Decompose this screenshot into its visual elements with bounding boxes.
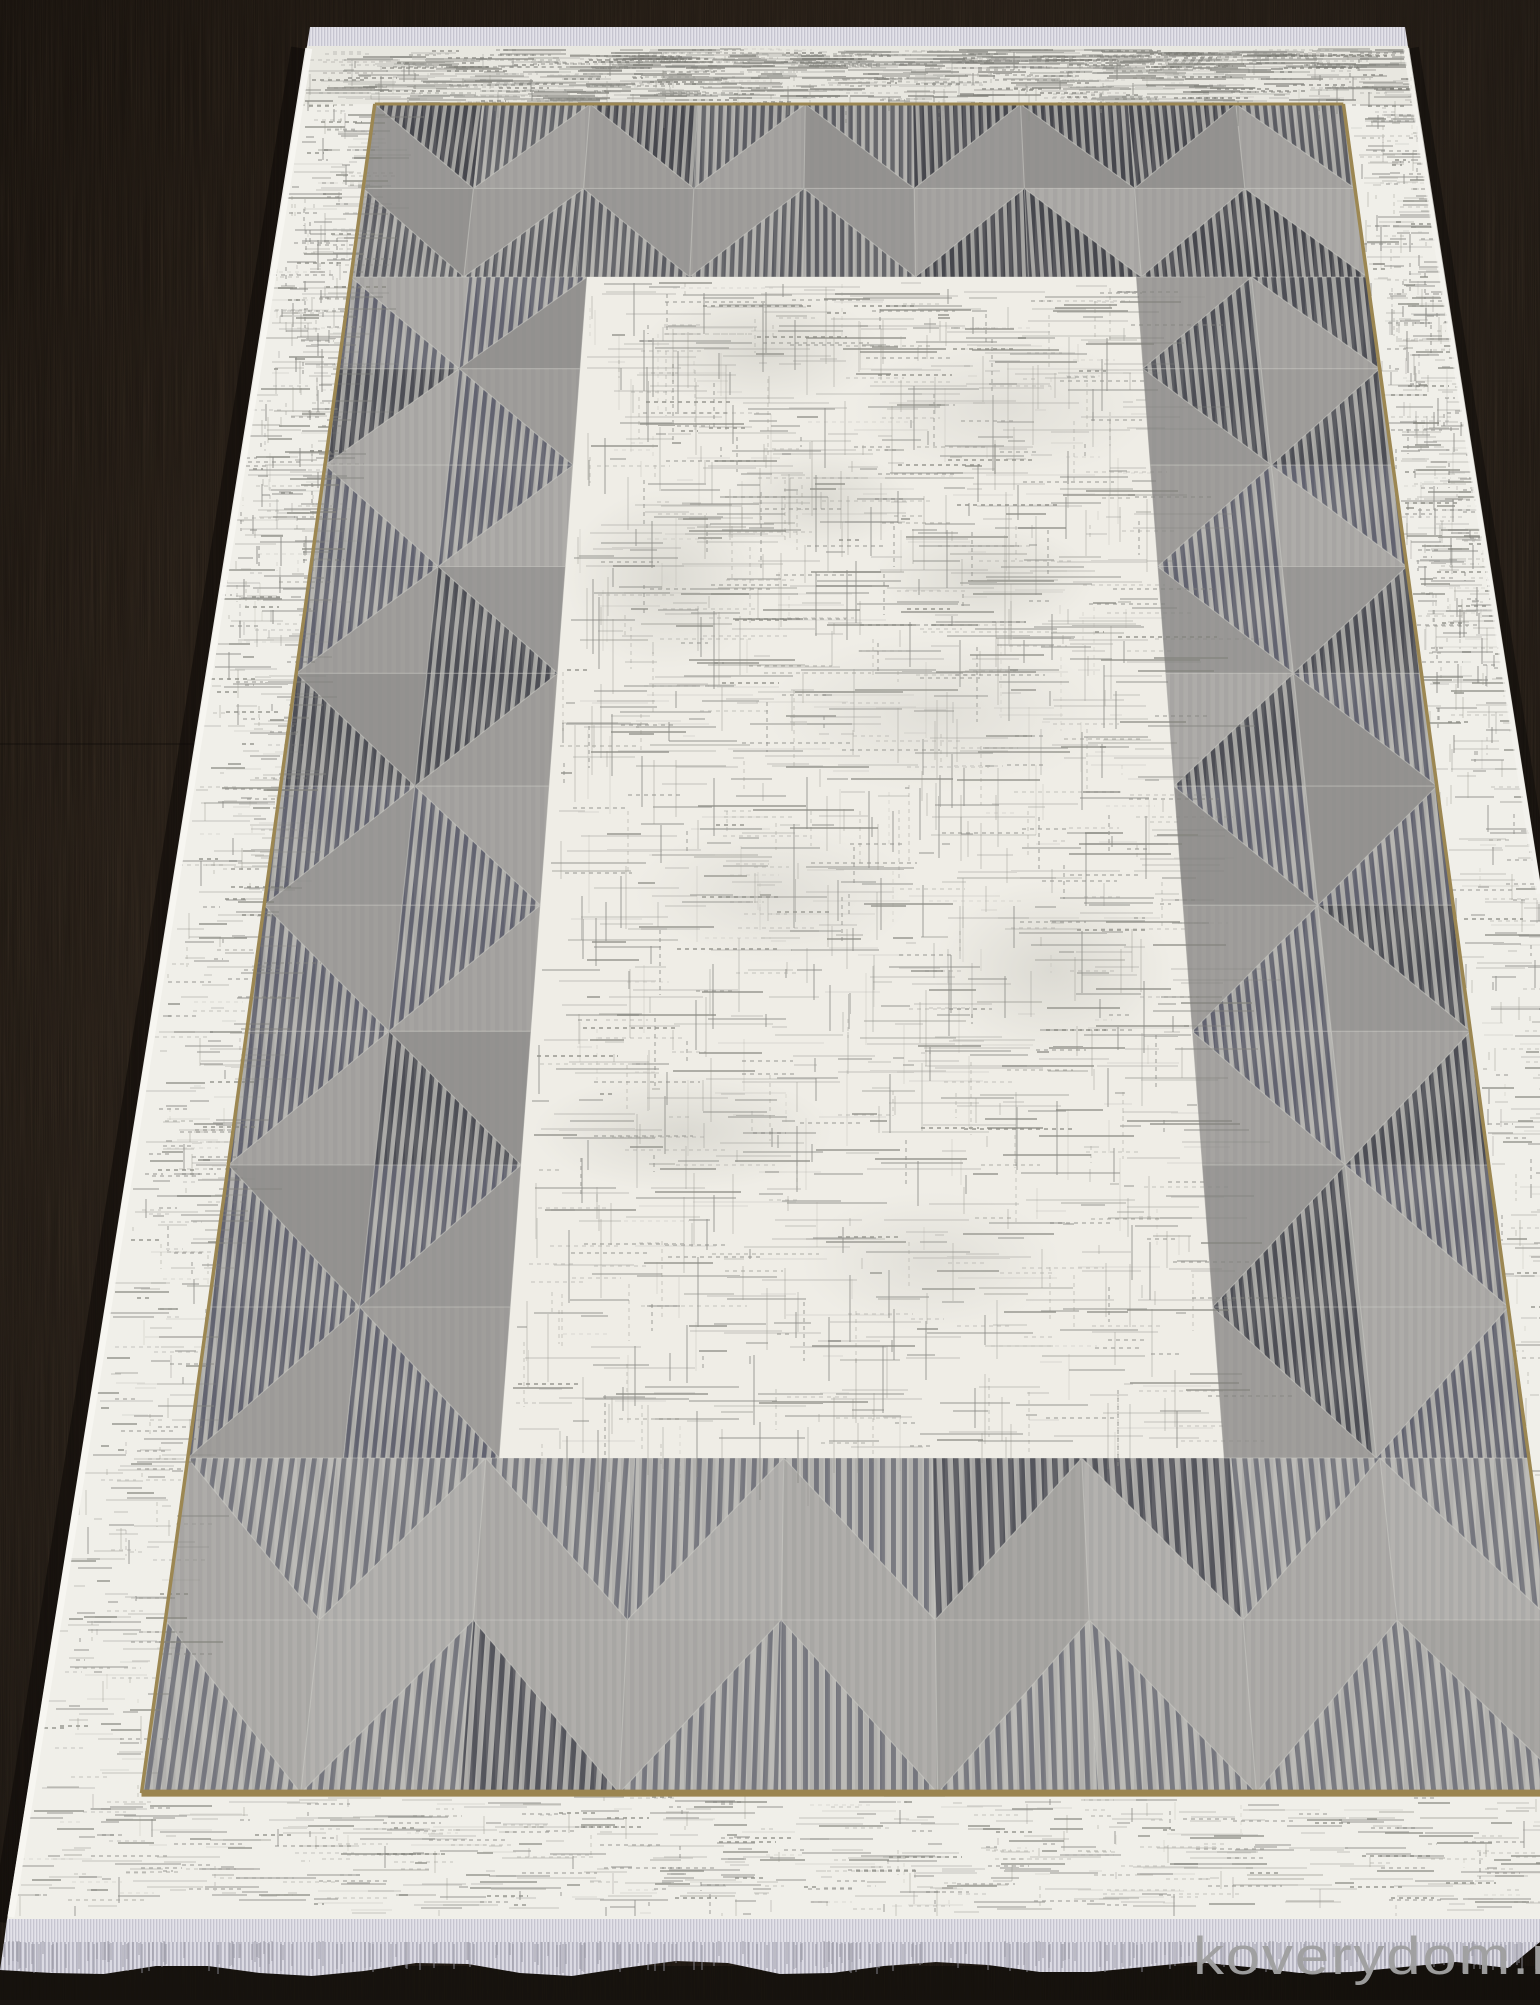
- svg-text:koverydom.ru: koverydom.ru: [1193, 1927, 1540, 1986]
